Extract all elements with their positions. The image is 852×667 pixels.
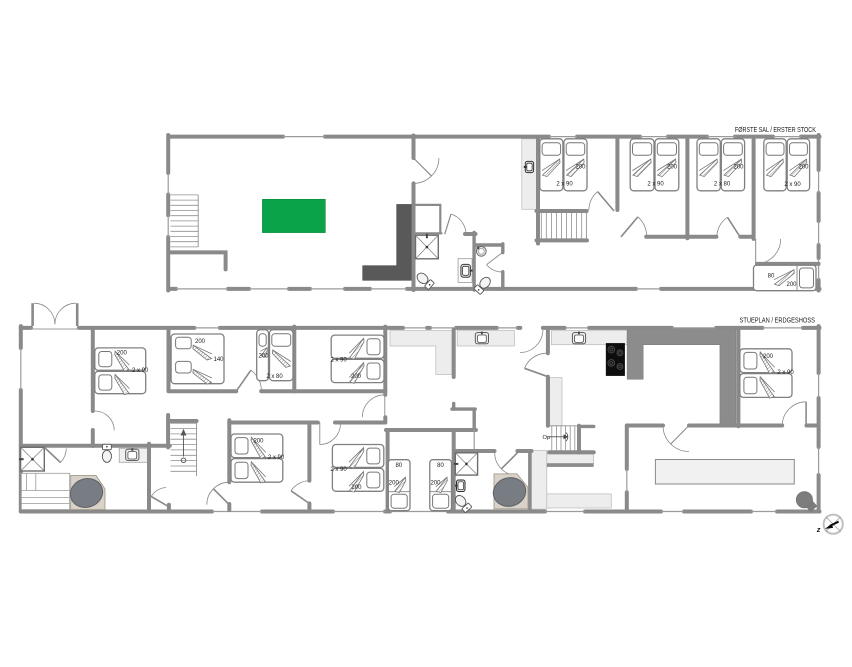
svg-text:200: 200 bbox=[258, 354, 269, 360]
svg-text:FØRSTE SAL / ERSTER STOCK: FØRSTE SAL / ERSTER STOCK bbox=[735, 125, 816, 134]
svg-text:140: 140 bbox=[213, 357, 224, 363]
svg-text:2 x 90: 2 x 90 bbox=[330, 357, 347, 363]
svg-text:200: 200 bbox=[430, 481, 441, 487]
svg-text:200: 200 bbox=[763, 354, 774, 360]
svg-text:80: 80 bbox=[395, 463, 402, 469]
svg-text:2 x 90: 2 x 90 bbox=[330, 467, 347, 473]
svg-text:2 x 80: 2 x 80 bbox=[714, 181, 731, 187]
svg-text:200: 200 bbox=[798, 164, 809, 170]
svg-text:STUEPLAN / ERDGESHOSS: STUEPLAN / ERDGESHOSS bbox=[740, 316, 816, 325]
svg-text:200: 200 bbox=[786, 282, 797, 288]
svg-text:2 x 90: 2 x 90 bbox=[784, 182, 801, 188]
svg-text:200: 200 bbox=[351, 485, 362, 491]
svg-text:200: 200 bbox=[195, 339, 206, 345]
svg-text:200: 200 bbox=[733, 164, 744, 170]
svg-text:200: 200 bbox=[351, 374, 362, 380]
svg-text:z: z bbox=[816, 525, 821, 534]
svg-text:2 x 90: 2 x 90 bbox=[132, 368, 149, 374]
svg-text:80: 80 bbox=[437, 463, 444, 469]
svg-text:2 x 90: 2 x 90 bbox=[777, 370, 794, 376]
svg-text:2 x 90: 2 x 90 bbox=[647, 181, 664, 187]
svg-text:200: 200 bbox=[575, 164, 586, 170]
svg-text:80: 80 bbox=[768, 274, 775, 280]
svg-text:2 x 80: 2 x 80 bbox=[266, 374, 283, 380]
svg-text:2 x 90: 2 x 90 bbox=[268, 455, 285, 461]
svg-text:Op: Op bbox=[543, 435, 551, 441]
svg-text:200: 200 bbox=[253, 438, 264, 444]
svg-text:200: 200 bbox=[667, 164, 678, 170]
svg-text:200: 200 bbox=[389, 481, 400, 487]
svg-text:2 x 90: 2 x 90 bbox=[556, 181, 573, 187]
svg-text:200: 200 bbox=[117, 351, 128, 357]
